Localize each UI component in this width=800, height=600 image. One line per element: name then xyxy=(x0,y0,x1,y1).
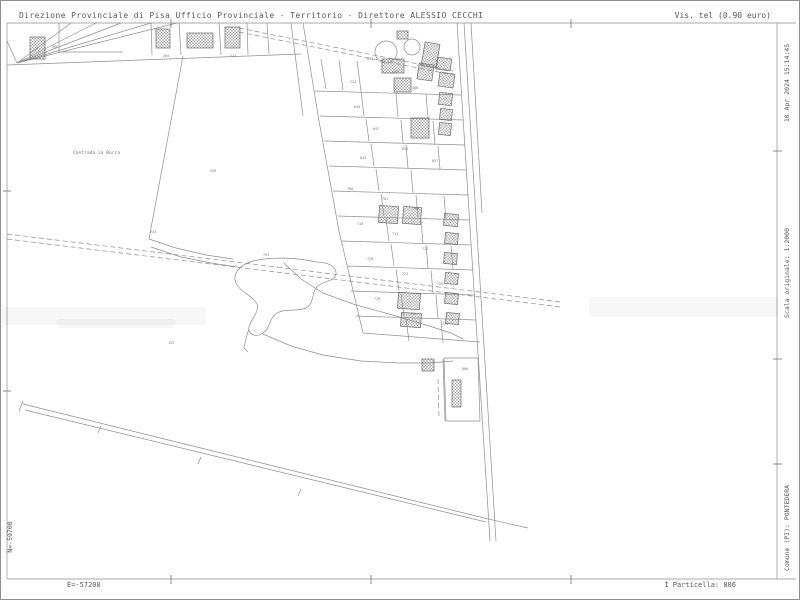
parcel-number-label: 400 xyxy=(392,70,398,74)
parcel-boundary-line xyxy=(391,244,394,266)
parcel-number-label: 710 xyxy=(357,222,363,226)
parcel-number-label: 720 xyxy=(367,257,373,261)
parcel-boundary-line xyxy=(396,269,399,291)
parcel-boundary-line xyxy=(396,93,398,117)
parcel-boundary-line xyxy=(303,23,319,121)
parcel-number-label: 806 xyxy=(462,367,468,371)
parcel-boundary-line xyxy=(401,120,403,143)
parcel-boundary-line xyxy=(357,61,361,91)
parcel-boundary-line xyxy=(371,144,374,166)
parcel-number-label: 731 xyxy=(410,312,416,316)
building-hatched xyxy=(436,57,452,71)
building-hatched xyxy=(411,118,429,138)
comune-label: Comune (PI): PONTEDERA xyxy=(783,485,791,571)
north-coordinate-label: N=-59700 xyxy=(6,521,14,552)
building-hatched xyxy=(156,29,170,48)
parcel-number-label: 706 xyxy=(413,207,419,211)
scan-smudge xyxy=(589,297,779,317)
pond-outline xyxy=(235,258,336,335)
locality-label: Contrada la Borra xyxy=(73,150,120,156)
watercourse-line xyxy=(149,239,233,259)
tank-outline xyxy=(404,39,420,55)
parcel-number-label: 229 xyxy=(210,169,216,173)
parcel-boundary-line xyxy=(366,119,369,141)
parcel-number-label: 726 xyxy=(437,282,443,286)
building-hatched xyxy=(439,108,452,120)
parcel-boundary-line xyxy=(464,23,496,541)
parcel-boundary-line xyxy=(471,23,482,213)
parcel-boundary-line xyxy=(291,23,303,116)
parcel-boundary-line xyxy=(433,121,435,145)
parcel-boundary-line xyxy=(376,169,379,191)
parcel-boundary-line xyxy=(149,56,183,239)
building-hatched xyxy=(443,213,458,226)
parcel-boundary-line xyxy=(347,266,473,270)
building-hatched xyxy=(438,72,455,88)
parcel-boundary-line xyxy=(151,23,152,55)
parcel-number-label: 700 xyxy=(347,187,353,191)
parcel-number-label: 657 xyxy=(432,159,438,163)
parcel-number-label: 734 xyxy=(442,322,448,326)
building-hatched xyxy=(438,122,451,135)
parcel-boundary-line xyxy=(339,60,343,90)
parcel-boundary-line xyxy=(7,41,17,63)
building-hatched xyxy=(187,33,213,48)
parcel-number-label: 713 xyxy=(392,232,398,236)
building-hatched xyxy=(397,292,420,309)
print-datetime-label: 10 Apr 2024 15:14:45 xyxy=(783,44,791,122)
building-hatched xyxy=(444,292,458,304)
original-scale-label: Scala originale: 1:2000 xyxy=(783,228,791,318)
parcel-boundary-line xyxy=(411,170,413,193)
parcel-number-label: 638 xyxy=(367,57,373,61)
parcel-boundary-line xyxy=(23,404,484,518)
parcel-number-label: 212 xyxy=(230,54,236,58)
parcel-boundary-line xyxy=(267,23,269,54)
parcel-boundary-line xyxy=(319,121,339,231)
scan-smudge xyxy=(56,319,176,328)
parcel-boundary-line xyxy=(484,518,528,528)
parcel-boundary-line xyxy=(363,333,480,342)
cadastral-extract-page: Direzione Provinciale di Pisa Ufficio Pr… xyxy=(0,0,800,600)
parcel-number-label: 717 xyxy=(422,247,428,251)
parcel-boundary-line xyxy=(298,489,301,496)
parcel-number-label: 640 xyxy=(354,105,360,109)
parcel-boundary-line xyxy=(198,457,201,464)
building-hatched xyxy=(452,380,461,407)
parcel-number-label: 647 xyxy=(373,127,379,131)
parcel-number-label: 651 xyxy=(402,147,408,151)
building-hatched xyxy=(225,27,240,48)
parcel-boundary-line xyxy=(361,91,364,116)
parcel-number-label: 406 xyxy=(412,86,418,90)
parcel-boundary-line xyxy=(426,94,428,118)
parcel-number-label: 743 xyxy=(150,230,156,234)
building-hatched xyxy=(444,232,458,244)
parcel-number-label: 224 xyxy=(350,80,356,84)
parcel-boundary-line xyxy=(98,426,101,433)
building-hatched xyxy=(443,252,457,264)
building-hatched xyxy=(378,205,398,223)
parcel-number-label: 702 xyxy=(382,197,388,201)
parcel-number-label: 753 xyxy=(263,253,269,257)
parcel-boundary-line xyxy=(179,23,181,55)
parcel-boundary-line xyxy=(25,410,486,522)
building-hatched xyxy=(30,37,45,59)
parcel-boundary-line xyxy=(324,141,465,145)
parcel-boundary-line xyxy=(438,146,440,169)
parcel-boundary-line xyxy=(19,401,23,411)
parcel-number-label: 135 xyxy=(168,341,174,345)
east-coordinate-label: E=-57200 xyxy=(67,581,101,589)
building-hatched xyxy=(444,272,458,284)
watercourse-line xyxy=(284,263,463,339)
particella-label: I Particella: 806 xyxy=(664,581,736,589)
building-hatched xyxy=(438,92,452,105)
building-hatched xyxy=(394,78,411,92)
pond-outline xyxy=(244,329,249,352)
parcel-number-label: 198 xyxy=(51,45,57,49)
parcel-boundary-line xyxy=(7,54,301,65)
parcel-boundary-line xyxy=(421,220,423,243)
parcel-boundary-line xyxy=(333,191,468,195)
parcel-boundary-line xyxy=(436,295,438,318)
parcel-boundary-line xyxy=(247,23,248,55)
building-hatched xyxy=(417,63,434,81)
parcel-boundary-line xyxy=(457,23,490,541)
parcel-boundary-line xyxy=(329,166,466,170)
parcel-boundary-line xyxy=(219,23,221,55)
parcel-number-label: 204 xyxy=(163,54,169,58)
parcel-boundary-line xyxy=(431,270,433,293)
parcel-number-label: 723 xyxy=(402,272,408,276)
parcel-number-label: 643 xyxy=(360,156,366,160)
parcel-boundary-line xyxy=(321,59,326,89)
dashed-road-line xyxy=(438,379,439,418)
parcel-number-label: 729 xyxy=(374,297,380,301)
watercourse-line xyxy=(263,334,453,363)
building-hatched xyxy=(422,359,434,371)
building-hatched xyxy=(397,31,408,39)
